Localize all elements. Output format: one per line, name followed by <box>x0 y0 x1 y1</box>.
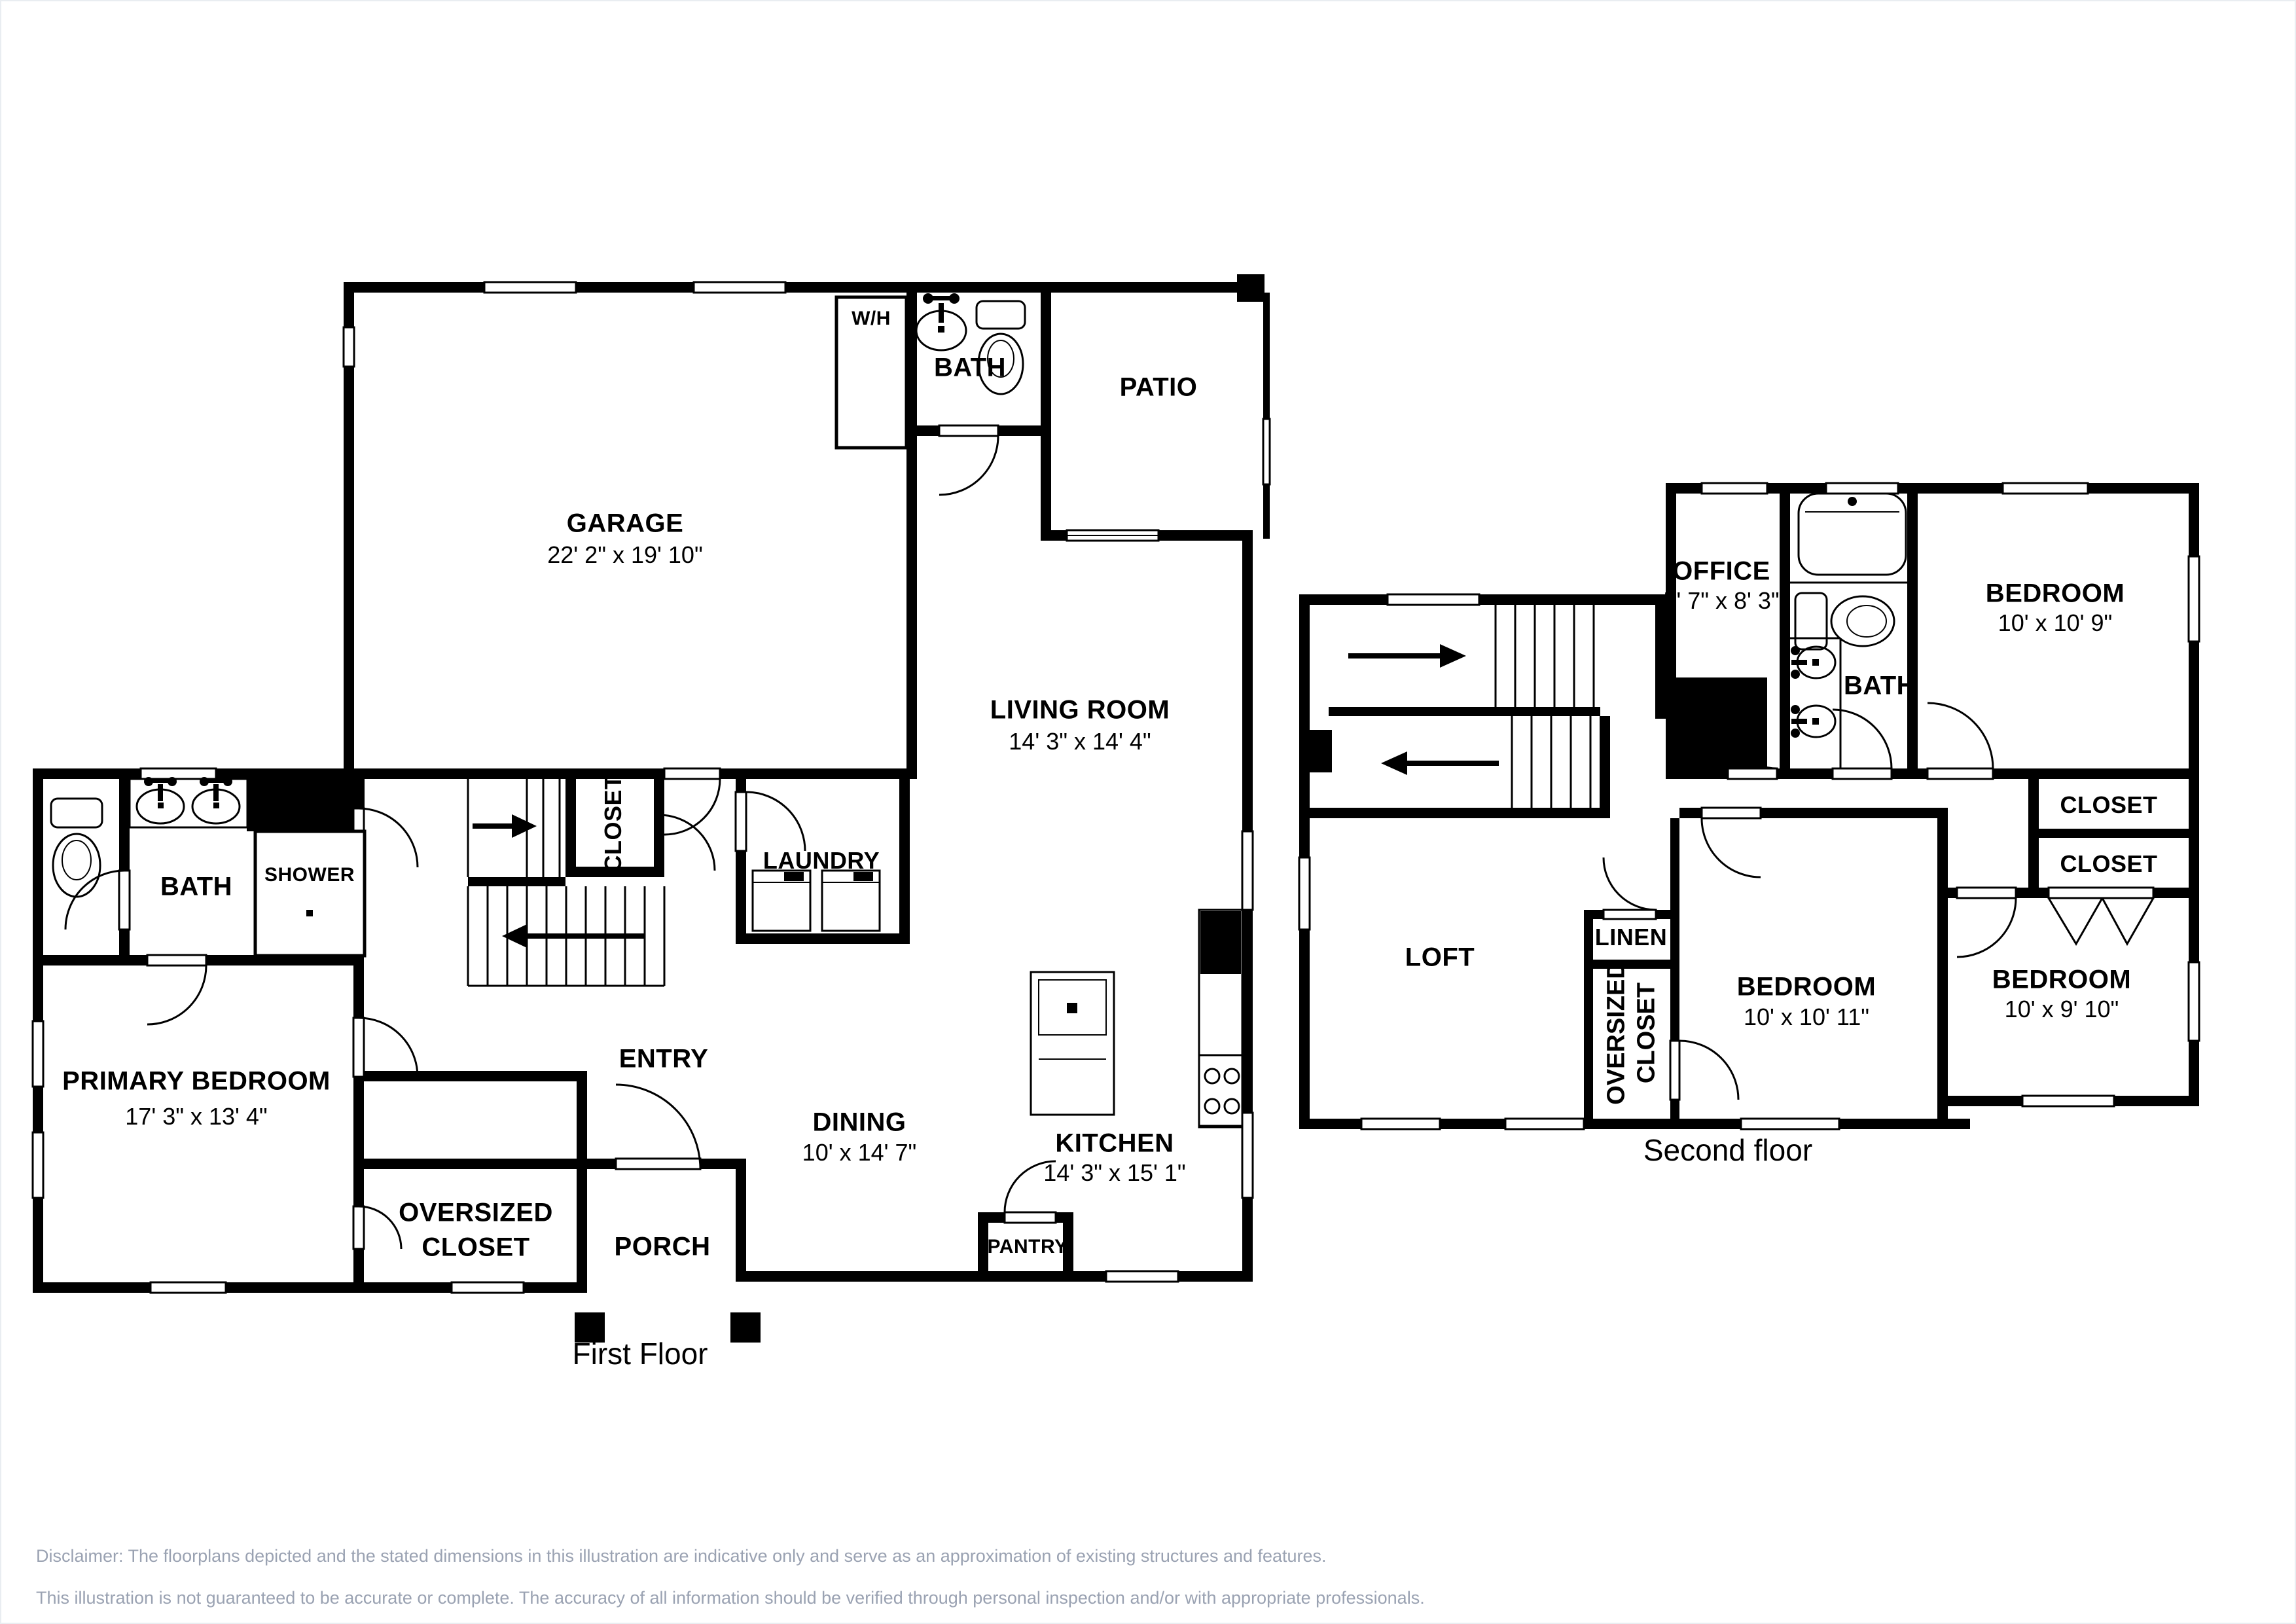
living-room-label: LIVING ROOM <box>990 696 1170 725</box>
closet-1-label: CLOSET <box>2060 791 2157 819</box>
bedroom-right-dims: 10' x 9' 10" <box>2005 996 2119 1023</box>
kitchen-counter <box>1199 910 1242 1127</box>
second-floor-caption: Second floor <box>1643 1132 1812 1168</box>
bifold-closet-door <box>2049 888 2153 944</box>
floorplan-page: GARAGE 22' 2" x 19' 10" W/H BATH PATIO L… <box>0 0 2296 1624</box>
second-floor-fixtures <box>1790 494 1907 768</box>
refrigerator-icon <box>1200 911 1241 974</box>
wall-fill-block <box>1299 730 1332 772</box>
shower-label: SHOWER <box>264 864 355 886</box>
office-dims: 5' 7" x 8' 3" <box>1663 587 1779 615</box>
garage-dims: 22' 2" x 19' 10" <box>547 541 702 569</box>
oversized-closet-2f-label: OVERSIZED CLOSET <box>1602 961 1661 1105</box>
stair-void-fill <box>1676 677 1767 779</box>
oversized-closet-label-line1: OVERSIZED <box>399 1199 553 1228</box>
kitchen-dims: 14' 3" x 15' 1" <box>1043 1159 1185 1187</box>
dryer-icon <box>822 871 880 931</box>
washer-icon <box>753 871 810 931</box>
shower-drain <box>306 910 313 916</box>
bedroom-top-label: BEDROOM <box>1986 579 2125 609</box>
disclaimer-line-1: Disclaimer: The floorplans depicted and … <box>36 1546 1327 1566</box>
hall-closet-label: CLOSET <box>600 774 627 872</box>
oversized-closet-2f-line2: CLOSET <box>1632 961 1662 1105</box>
primary-bath-label: BATH <box>160 873 232 902</box>
patio-slider-door <box>1067 530 1158 541</box>
office-label: OFFICE <box>1672 557 1770 586</box>
toilet-icon <box>1795 593 1894 649</box>
oversized-closet-label-line2: CLOSET <box>422 1233 529 1263</box>
closet-2-label: CLOSET <box>2060 850 2157 878</box>
garage-label: GARAGE <box>567 509 684 539</box>
bedroom-mid-dims: 10' x 10' 11" <box>1744 1003 1869 1031</box>
pantry-label: PANTRY <box>988 1236 1068 1258</box>
dining-dims: 10' x 14' 7" <box>802 1139 917 1166</box>
laundry-label: LAUNDRY <box>763 847 880 875</box>
primary-bedroom-dims: 17' 3" x 13' 4" <box>125 1103 267 1130</box>
bath-2f-label: BATH <box>1844 672 1916 701</box>
kitchen-island <box>1031 972 1114 1115</box>
vanity-double-sink <box>1790 638 1840 768</box>
dining-label: DINING <box>813 1108 906 1138</box>
wall-fill-block <box>247 779 365 831</box>
toilet-icon <box>51 799 102 897</box>
porch-label: PORCH <box>615 1233 711 1262</box>
bath-upper-label: BATH <box>934 353 1006 383</box>
shower-stall <box>255 831 365 956</box>
kitchen-label: KITCHEN <box>1055 1129 1174 1159</box>
bedroom-top-dims: 10' x 10' 9" <box>1998 609 2113 637</box>
second-floor-stairs <box>1348 605 1594 808</box>
bedroom-right-label: BEDROOM <box>1992 965 2131 995</box>
water-heater-label: W/H <box>852 308 891 330</box>
floor-plan-drawing <box>0 0 2296 1624</box>
entry-label: ENTRY <box>619 1045 709 1074</box>
bathtub-icon <box>1799 494 1906 575</box>
disclaimer-line-2: This illustration is not guaranteed to b… <box>36 1588 1425 1608</box>
patio-label: PATIO <box>1120 373 1198 403</box>
stove-icon <box>1199 1055 1242 1126</box>
linen-label: LINEN <box>1595 924 1668 951</box>
sink-icon <box>916 293 966 350</box>
porch-post <box>730 1312 761 1343</box>
vanity-double-sink <box>130 777 247 827</box>
primary-bedroom-label: PRIMARY BEDROOM <box>62 1067 331 1096</box>
living-room-dims: 14' 3" x 14' 4" <box>1009 728 1151 755</box>
oversized-closet-2f-line1: OVERSIZED <box>1602 961 1632 1105</box>
bedroom-mid-label: BEDROOM <box>1737 973 1876 1002</box>
first-floor-caption: First Floor <box>573 1336 708 1371</box>
loft-label: LOFT <box>1405 943 1475 973</box>
